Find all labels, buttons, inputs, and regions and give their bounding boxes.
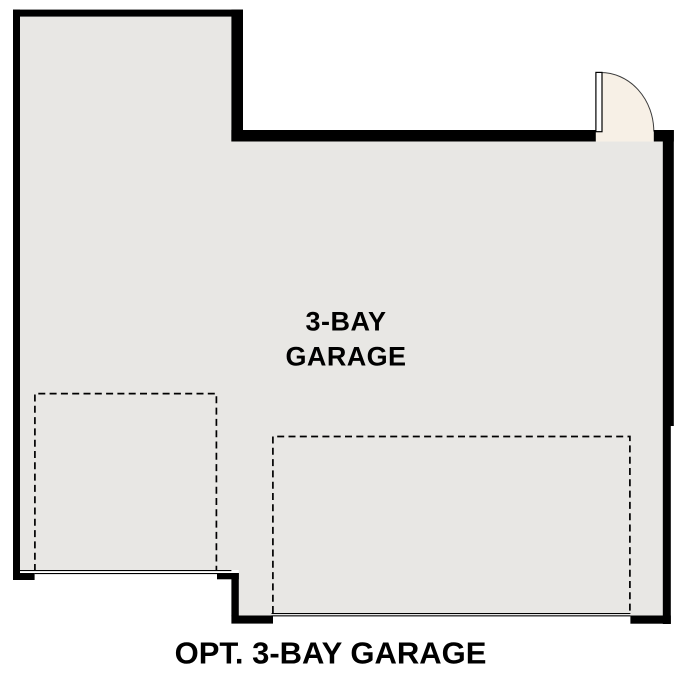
svg-text:GARAGE: GARAGE xyxy=(286,341,407,371)
svg-text:OPT. 3-BAY GARAGE: OPT. 3-BAY GARAGE xyxy=(175,635,487,670)
svg-text:3-BAY: 3-BAY xyxy=(305,307,386,337)
